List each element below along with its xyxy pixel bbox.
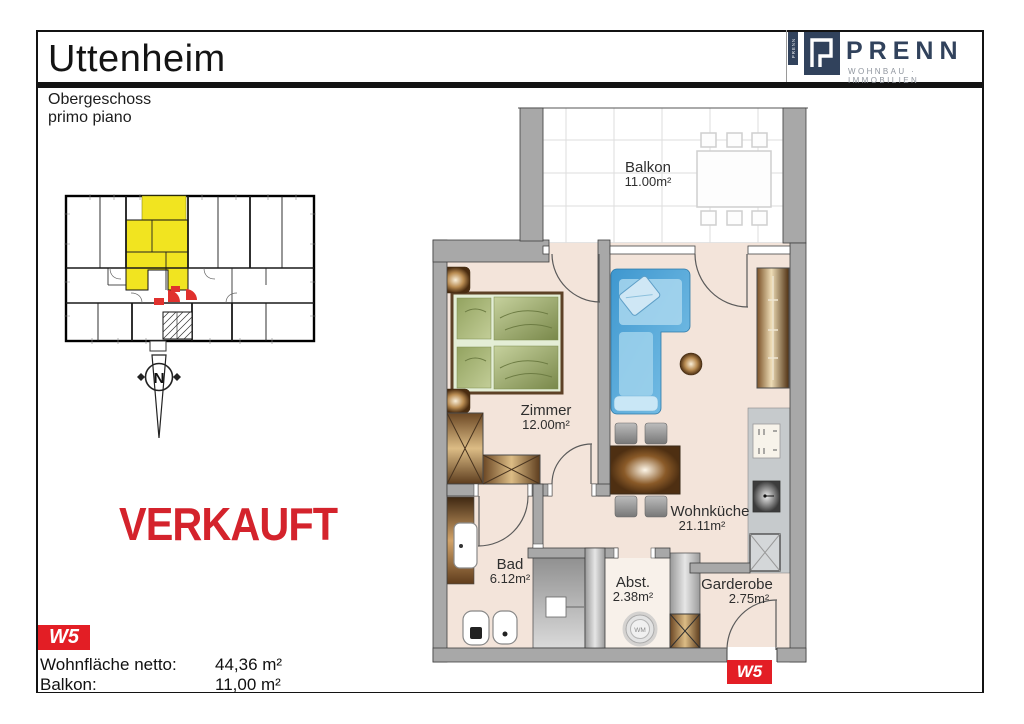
highlighted-unit-balcony <box>142 196 186 220</box>
sold-stamp: VERKAUFT <box>119 497 337 551</box>
room-label-zimmer: Zimmer 12.00m² <box>521 403 572 432</box>
graphics-layer: N <box>0 0 1024 724</box>
summary-label: Wohnfläche netto: <box>40 655 177 674</box>
bidet <box>493 611 517 644</box>
summary-value: 11,00 m² <box>215 675 281 695</box>
side-table <box>680 353 702 375</box>
summary-row-balcony: Balkon: 11,00 m² <box>40 675 370 695</box>
room-label-balkon: Balkon 11.00m² <box>625 160 672 189</box>
washing-machine-label: WM <box>634 627 646 634</box>
north-letter: N <box>154 370 165 387</box>
unit-badge: W5 <box>38 625 90 650</box>
dining-table <box>610 446 680 494</box>
north-arrow-icon: N <box>137 355 181 438</box>
balcony-furniture <box>697 133 771 225</box>
room-label-wohnkueche: Wohnküche 21.11m² <box>671 504 750 533</box>
room-label-garderobe: Garderobe 2.75m² <box>701 577 773 606</box>
room-label-abst: Abst. 2.38m² <box>613 575 653 604</box>
summary-value: 44,36 m² <box>215 655 282 675</box>
stove <box>753 424 780 458</box>
summary-row-living-area: Wohnfläche netto: 44,36 m² <box>40 655 370 675</box>
summary-label: Balkon: <box>40 675 97 694</box>
washbasin <box>454 523 477 568</box>
kitchen-fixtures <box>748 408 790 573</box>
room-label-bad: Bad 6.12m² <box>490 557 530 586</box>
duct-column <box>670 553 700 615</box>
overview-plan <box>64 194 316 351</box>
plan-sheet: Uttenheim Obergeschoss primo piano PRENN… <box>0 0 1024 724</box>
unit-badge-entrance: W5 <box>727 660 772 684</box>
